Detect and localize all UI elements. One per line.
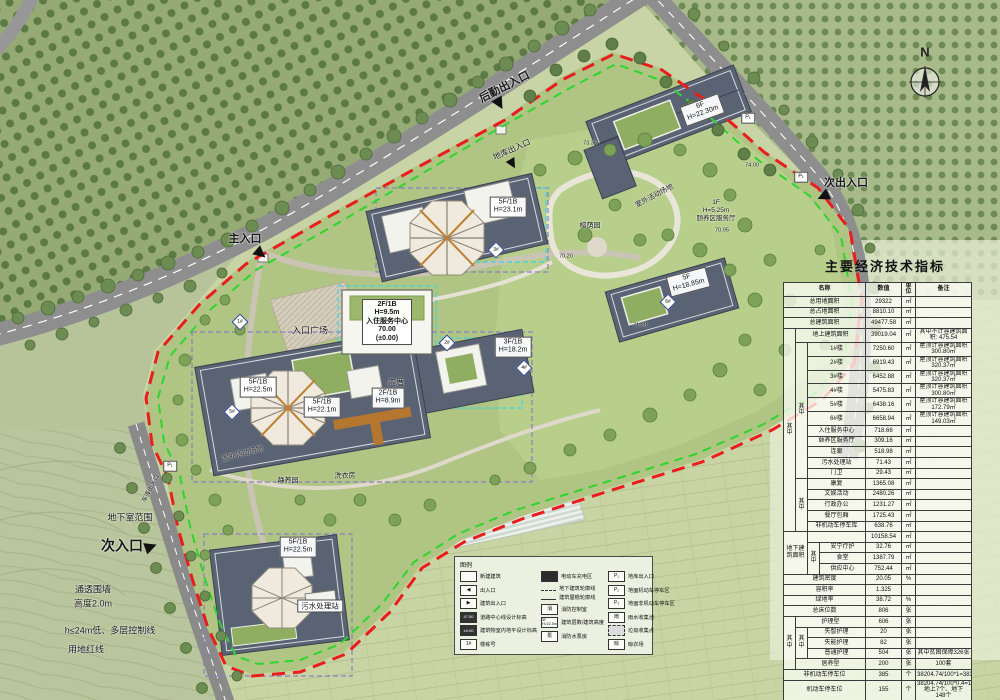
legend-item: 雨雨水收集池 [608,612,675,623]
table-cell: 张 [902,638,916,649]
table-cell: 6438.16 [866,398,902,412]
table-cell: 门卫 [808,468,866,479]
legend-label: 出入口 [480,587,496,594]
table-cell: 数值 [866,283,902,297]
legend-column: 电动车充电区地下建筑轮廓线建筑屋檐轮廓线消消防控制室5F H=22.5m建筑层数… [541,571,604,650]
table-cell: 6919.43 [866,356,902,370]
legend-item: 垃圾收集点 [608,625,675,636]
table-cell: 总床位数 [784,606,866,617]
table-cell: 屋顶计容建筑面积300.80㎡ [916,342,972,356]
entrance-icon: ◀ [460,585,477,596]
table-cell: 屋顶计容建筑面积320.37㎡ [916,356,972,370]
table-cell: 其中 [796,627,808,659]
table-cell: ㎡ [902,384,916,398]
table-cell: 3#楼 [808,370,866,384]
table-cell: 5475.83 [866,384,902,398]
table-cell: ㎡ [902,412,916,426]
table-cell [916,307,972,318]
table-cell: 20.05 [866,574,902,585]
table-cell: 名称 [784,283,866,297]
table-cell: ㎡ [902,532,916,543]
table-cell: 入住服务中心 [808,426,866,437]
table-cell [916,489,972,500]
legend-item: 建筑屋檐轮廓线 [541,594,604,601]
table-cell: 82 [866,638,902,649]
legend-label: 新建建筑 [480,573,501,580]
table-cell: 容积率 [784,585,866,596]
legend-item: 地下建筑轮廓线 [541,585,604,592]
table-cell: 其中贫困保障326张 [916,648,972,659]
table-cell: 其中 [808,542,820,574]
table-cell: 718.66 [866,426,902,437]
table-cell: 张 [902,648,916,659]
table-cell: 总用地面积 [784,296,866,307]
table-cell [916,595,972,606]
legend-label: 建筑屋檐轮廓线 [559,594,595,601]
table-cell: 居养型 [796,659,866,670]
legend-title: 图例 [460,560,648,569]
table-cell: ㎡ [902,447,916,458]
table-cell: 10158.54 [866,532,902,543]
site-plan-page: 后勤出入口地库出入口次出入口主入口次入口地下室范围通透围墙高度2.0mh≤24m… [0,0,1000,700]
ev-charging-icon [541,571,558,582]
legend-label: 建筑层数/建筑高度 [561,619,604,626]
table-cell: 建筑密度 [784,574,866,585]
table-cell: 1231.27 [866,500,902,511]
legend-label: 雨水收集池 [628,614,654,621]
table-cell: 绿地率 [784,595,866,606]
table-cell: % [902,574,916,585]
table-cell: 康复 [808,479,866,490]
table-cell [916,511,972,522]
legend-label: 道路中心线设计标高 [480,614,527,621]
table-cell: ㎡ [902,511,916,522]
table-cell: ㎡ [902,500,916,511]
table-cell: 638.76 [866,521,902,532]
legend-item: 47.50道路中心线设计标高 [460,612,537,623]
legend-item: P₁地库出入口 [608,571,675,582]
table-cell [916,616,972,627]
table-cell: 38204.74/100*0.4=153 地上7个、地下 148个 [916,680,972,700]
table-cell [916,296,972,307]
legend-item: 电动车充电区 [541,571,604,582]
table-cell: 385 [866,669,902,680]
floors-height-icon: 5F H=22.5m [541,617,558,628]
table-cell: 张 [902,616,916,627]
legend-column: 新建建筑◀出入口▶建筑出入口47.50道路中心线设计标高±0.00建筑物室内地平… [460,571,537,650]
table-cell: 32.76 [866,542,902,553]
table-cell [808,532,866,543]
table-cell: 29322 [866,296,902,307]
table-cell: 其中不计容建筑面积: 475.54 [916,328,972,342]
table-cell: ㎡ [902,489,916,500]
legend-item: P₃地面非机动车停车区 [608,598,675,609]
table-title: 主要经济技术指标 [825,256,972,275]
table-cell [916,542,972,553]
table-cell: 屋顶计容建筑面积320.37㎡ [916,370,972,384]
table-cell: 屋顶计容建筑面积300.80㎡ [916,384,972,398]
table-cell: ㎡ [902,370,916,384]
table-cell: 8810.10 [866,307,902,318]
table-cell: ㎡ [902,307,916,318]
table-cell: 38204.74/100*1=383 [916,669,972,680]
table-cell: 39019.04 [866,328,902,342]
table-cell [916,574,972,585]
eave-outline-icon [541,599,556,600]
fire-control-icon: 消 [541,604,558,615]
legend-label: 消防控制室 [561,606,587,613]
table-cell: ㎡ [902,542,916,553]
table-cell [916,627,972,638]
table-cell: 6658.94 [866,412,902,426]
table-cell: 752.44 [866,564,902,575]
table-cell [916,606,972,617]
table-cell: 连廊 [808,447,866,458]
table-cell: 屋顶计容建筑面积172.79㎡ [916,398,972,412]
table-cell: ㎡ [902,553,916,564]
table-cell: 个 [902,669,916,680]
table-cell: 餐厅包厢 [808,511,866,522]
building-number-icon: 1# [460,639,477,650]
legend-item: P₂地面机动车停车区 [608,585,675,596]
table-cell: 5#楼 [808,398,866,412]
table-cell: % [902,595,916,606]
table-cell: 其中 [796,342,808,479]
table-cell: 4#楼 [808,384,866,398]
table-cell: ㎡ [902,342,916,356]
garbage-icon [608,625,625,636]
garage-entrance-icon: P₁ [608,571,625,582]
table-cell: 518.98 [866,447,902,458]
table-cell: 备注 [916,283,972,297]
legend-label: 地库出入口 [628,573,654,580]
table-cell: 护理型 [796,616,866,627]
table-cell: 张 [902,659,916,670]
table-cell: 屋顶计容建筑面积149.03㎡ [916,412,972,426]
table-cell: ㎡ [902,521,916,532]
legend-columns: 新建建筑◀出入口▶建筑出入口47.50道路中心线设计标高±0.00建筑物室内地平… [460,571,648,650]
table-cell: 颐养区服务厅 [808,436,866,447]
table-cell [916,447,972,458]
table-cell [916,638,972,649]
table-cell: ㎡ [902,426,916,437]
table-cell: 其中 [784,616,796,669]
table-cell: 其中 [796,479,808,532]
table-cell: 6#楼 [808,412,866,426]
non-motor-parking-icon: P₃ [608,598,625,609]
indicator-table: 名称数值单位备注总用地面积29322㎡总占地面积8810.10㎡总建筑面积494… [783,282,972,700]
underground-outline-icon [541,590,556,591]
table-cell: 食堂 [820,553,866,564]
legend-label: 建筑出入口 [480,600,506,607]
legend-label: 晾衣场 [628,641,644,648]
legend-label: 地下建筑轮廓线 [559,585,595,592]
legend-label: 电动车充电区 [561,573,592,580]
table-cell: 安宁疗护 [820,542,866,553]
legend-label: 楼栋号 [480,641,496,648]
table-cell: 个 [902,680,916,700]
table-cell: 1365.08 [866,479,902,490]
legend-column: P₁地库出入口P₂地面机动车停车区P₃地面非机动车停车区雨雨水收集池垃圾收集点晾… [608,571,675,650]
legend-label: 地面机动车停车区 [628,587,670,594]
table-cell: ㎡ [902,564,916,575]
legend-item: 1#楼栋号 [460,639,537,650]
table-cell: 地上建筑面积 [796,328,866,342]
north-label: N [920,45,929,60]
road-elevation-icon: 47.50 [460,612,477,623]
legend-label: 垃圾收集点 [628,627,654,634]
legend-item: ◀出入口 [460,585,537,596]
table-cell: 806 [866,606,902,617]
table-cell: 文娱活动 [808,489,866,500]
table-cell [916,500,972,511]
table-cell: 地下建筑面积 [784,532,808,574]
table-cell: 100套 [916,659,972,670]
table-cell: ㎡ [902,468,916,479]
table-cell [916,468,972,479]
table-cell: 2#楼 [808,356,866,370]
table-cell: 38.72 [866,595,902,606]
table-cell: 1#楼 [808,342,866,356]
table-cell: 606 [866,616,902,627]
legend-label: 建筑物室内地平设计标高 [480,627,537,634]
legend-panel: 图例 新建建筑◀出入口▶建筑出入口47.50道路中心线设计标高±0.00建筑物室… [454,556,653,655]
clothes-drying-icon: 晾 [608,639,625,650]
table-cell: 非机动车停车位 [784,669,866,680]
table-cell [916,532,972,543]
table-cell: 29.43 [866,468,902,479]
table-cell: 7250.60 [866,342,902,356]
legend-item: 5F H=22.5m建筑层数/建筑高度 [541,617,604,628]
table-cell: 71.43 [866,458,902,469]
table-cell [916,521,972,532]
legend-item: 新建建筑 [460,571,537,582]
table-cell: 失智护理 [808,627,866,638]
table-cell: 污水处理站 [808,458,866,469]
table-cell: 供应中心 [820,564,866,575]
table-cell [916,479,972,490]
table-cell: 机动车停车位 [784,680,866,700]
table-cell: 失能护理 [808,638,866,649]
table-cell: ㎡ [902,296,916,307]
table-cell [916,436,972,447]
table-cell [902,585,916,596]
table-cell [916,318,972,329]
table-cell: 单位 [902,283,916,297]
table-cell: 总占地面积 [784,307,866,318]
table-cell: 张 [902,606,916,617]
fire-pump-icon: 泵 [541,631,558,642]
table-cell [916,458,972,469]
table-cell: 普通护理 [808,648,866,659]
table-cell: 2480.26 [866,489,902,500]
table-cell: ㎡ [902,479,916,490]
table-cell: 行政办公 [808,500,866,511]
legend-item: ±0.00建筑物室内地平设计标高 [460,625,537,636]
table-cell: 张 [902,627,916,638]
table-cell: 200 [866,659,902,670]
legend-item: 晾晾衣场 [608,639,675,650]
table-cell: 49477.58 [866,318,902,329]
building-entrance-icon: ▶ [460,598,477,609]
table-cell: 1725.43 [866,511,902,522]
table-cell: 总建筑面积 [784,318,866,329]
table-cell: 20 [866,627,902,638]
table-cell: ㎡ [902,458,916,469]
indicator-panel: 主要经济技术指标 名称数值单位备注总用地面积29322㎡总占地面积8810.10… [783,256,972,700]
surface-parking-icon: P₂ [608,585,625,596]
table-cell [916,585,972,596]
legend-item: 泵消防水泵房 [541,631,604,642]
table-cell [916,426,972,437]
legend-label: 消防水泵房 [561,633,587,640]
table-cell: 155 [866,680,902,700]
table-cell: 非机动车停车库 [808,521,866,532]
table-cell: 其中 [784,328,796,532]
table-cell: 309.16 [866,436,902,447]
legend-item: 消消防控制室 [541,604,604,615]
table-cell [916,564,972,575]
table-cell: 6452.88 [866,370,902,384]
table-cell: ㎡ [902,398,916,412]
rainwater-icon: 雨 [608,612,625,623]
table-cell [916,553,972,564]
table-cell: ㎡ [902,436,916,447]
indoor-elevation-icon: ±0.00 [460,625,477,636]
legend-label: 地面非机动车停车区 [628,600,675,607]
table-cell: ㎡ [902,328,916,342]
legend-item: ▶建筑出入口 [460,598,537,609]
new-building-icon [460,571,477,582]
table-cell: 1387.79 [866,553,902,564]
table-cell: 504 [866,648,902,659]
table-cell: 1.325 [866,585,902,596]
table-cell: ㎡ [902,318,916,329]
table-cell: ㎡ [902,356,916,370]
